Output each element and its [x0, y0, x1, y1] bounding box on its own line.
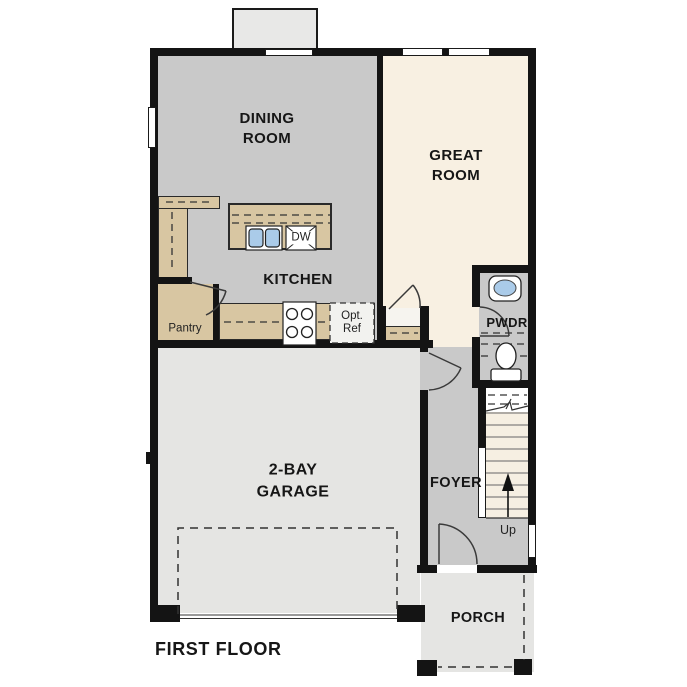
window-great-top-1 [402, 48, 443, 56]
window-dining-left [148, 107, 156, 148]
wall-kitchen-garage [150, 340, 433, 348]
garage-label: 2-BAY GARAGE [257, 459, 330, 502]
floor-plan: DINING ROOM GREAT ROOM KITCHEN 2-BAY GAR… [0, 0, 687, 687]
kitchen-label: KITCHEN [263, 270, 332, 290]
window-great-top-2 [448, 48, 490, 56]
opt-ref-label: Opt. Ref [341, 310, 363, 336]
kitchen-counter-return [158, 196, 220, 209]
garage-door [180, 615, 397, 619]
window-stair-right [528, 524, 536, 558]
porch-post-left [417, 660, 437, 676]
wall-right [528, 56, 536, 573]
wall-front-right [477, 565, 537, 573]
porch-label: PORCH [451, 609, 505, 629]
stair-upper-flight [486, 388, 528, 412]
wall-pantry-top [158, 277, 192, 284]
pwdr-label: PWDR [486, 314, 527, 332]
wall-garage-bottom-left [150, 605, 180, 622]
wall-pwdr-bottom [472, 380, 536, 388]
great-room-label: GREAT ROOM [429, 146, 482, 187]
plan-title: FIRST FLOOR [155, 637, 282, 661]
wall-dining-great-divider [377, 56, 383, 308]
wall-stair-stub [478, 388, 486, 447]
wall-pantry-right [213, 284, 219, 342]
wall-front-left [417, 565, 437, 573]
pantry-label: Pantry [168, 322, 201, 335]
stair-treads-area [486, 412, 528, 518]
closet-floor [386, 308, 420, 326]
wall-foyer-garage-upper [420, 348, 428, 352]
dining-room-label: DINING ROOM [240, 109, 295, 150]
bay-bump-out [232, 8, 318, 50]
wall-pwdr-left-upper [472, 273, 480, 307]
foyer-label: FOYER [430, 474, 482, 494]
wall-pwdr-top [472, 265, 536, 273]
up-label: Up [500, 523, 516, 537]
wall-garage-bottom-right [397, 605, 425, 622]
porch-post-right [514, 659, 532, 675]
wall-left-jog [146, 452, 158, 464]
kitchen-island [228, 203, 332, 250]
wall-foyer-garage-lower [420, 390, 428, 573]
window-dining-top [265, 49, 313, 56]
dishwasher-label: DW [290, 231, 311, 244]
